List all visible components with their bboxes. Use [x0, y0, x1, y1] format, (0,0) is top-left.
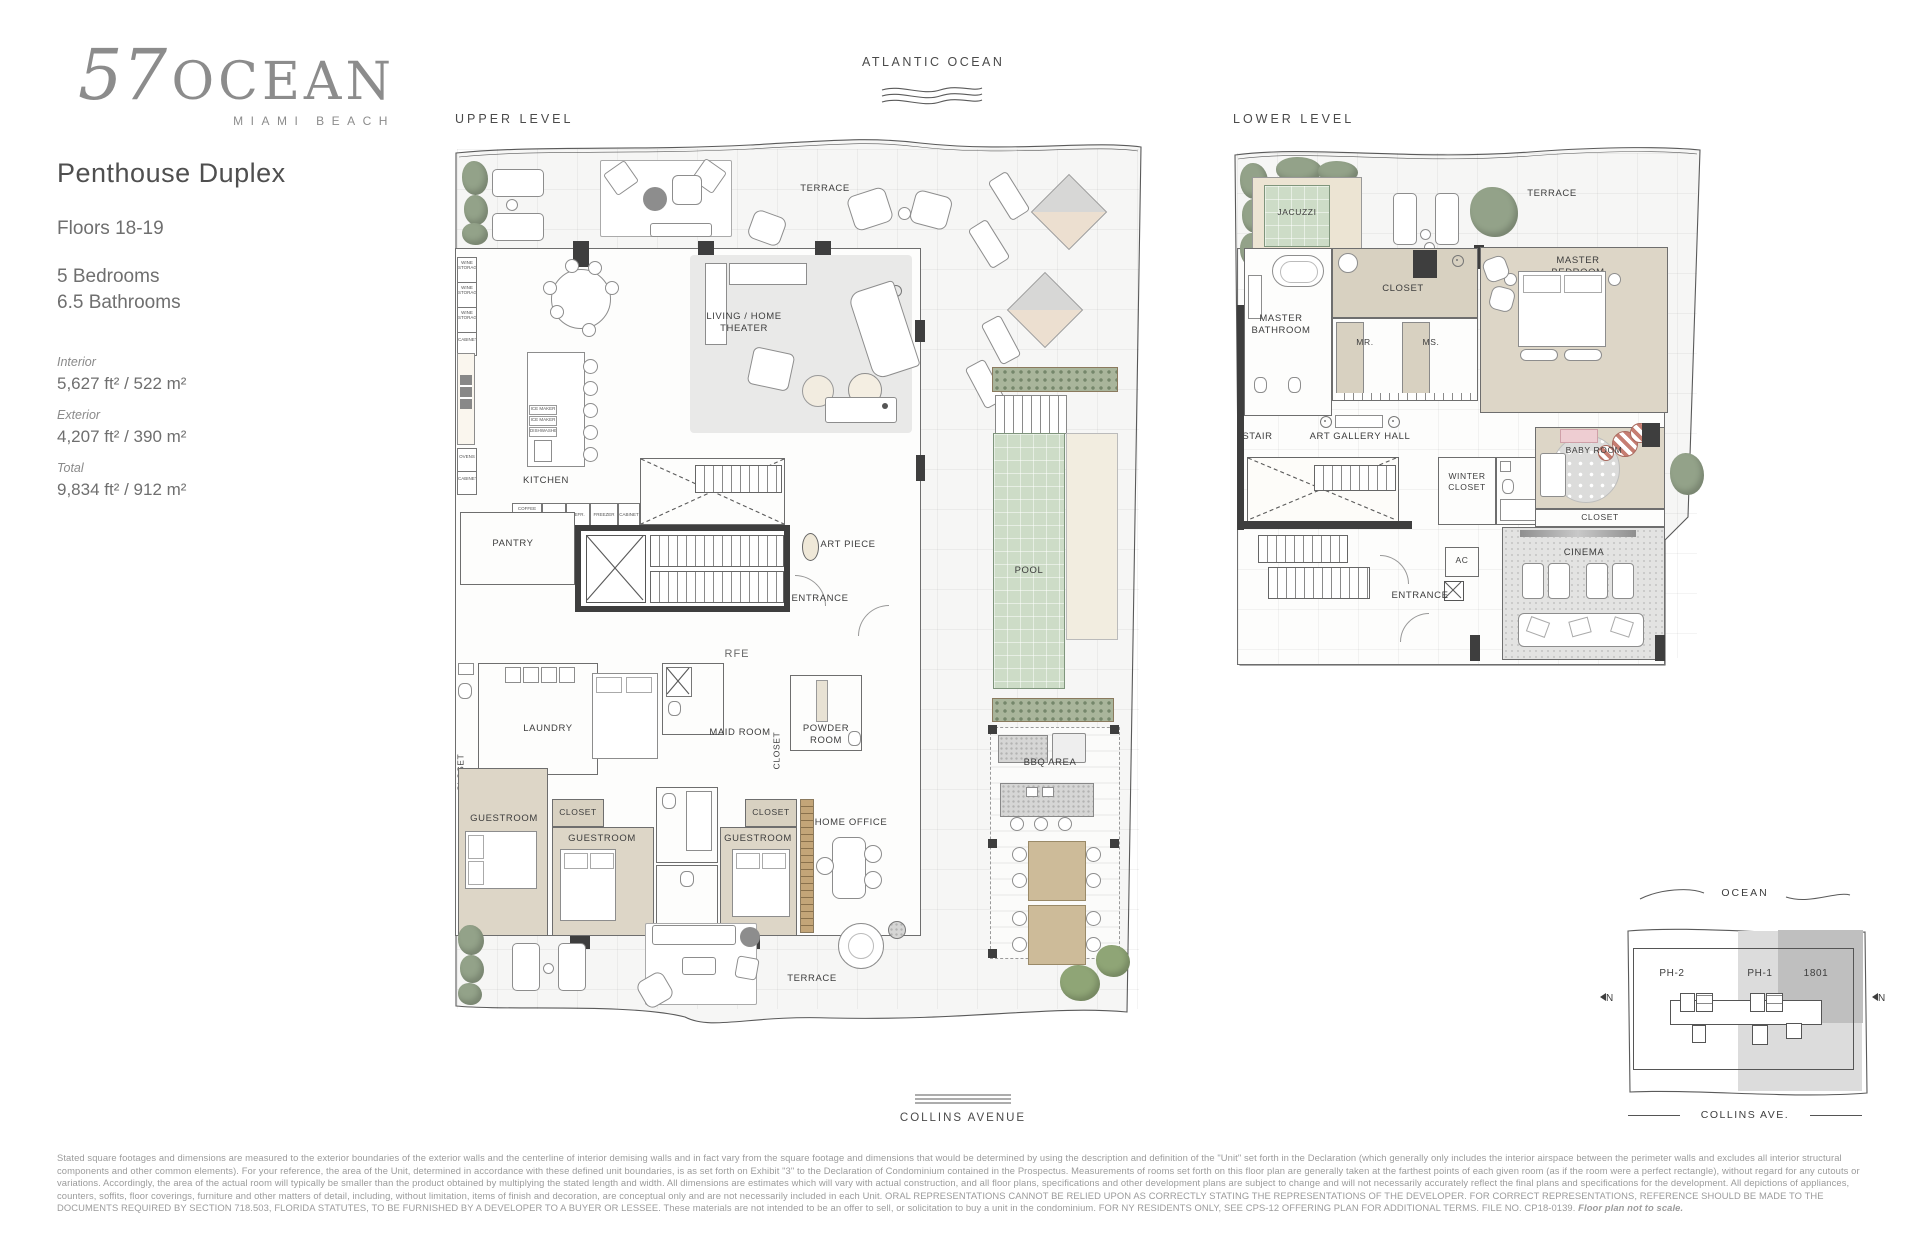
bed-bench: [1520, 349, 1558, 361]
dining-chair: [565, 259, 579, 273]
art-piece-label: ART PIECE: [810, 539, 886, 551]
vanity-chair: [1338, 253, 1358, 273]
key-core-stair: [1766, 993, 1783, 1012]
column: [1655, 635, 1665, 661]
ms-label: MS.: [1416, 337, 1446, 348]
dryer: [541, 667, 557, 683]
cinema-label: CINEMA: [1542, 547, 1626, 559]
area-total-value: 9,834 ft² / 912 m²: [57, 480, 186, 500]
bar-stool: [583, 381, 598, 396]
closet-label: CLOSET: [733, 807, 809, 818]
cooktop: [460, 375, 472, 409]
ice-maker: ICE MAKER: [529, 405, 557, 415]
column: [915, 320, 925, 342]
plant: [458, 925, 484, 955]
office-chair: [816, 857, 834, 875]
key-core-box: [1786, 1023, 1802, 1039]
dining-chair: [605, 281, 619, 295]
ice-maker: ICE MAKER: [529, 416, 557, 426]
toilet: [668, 701, 681, 716]
lower-level-label: LOWER LEVEL: [1233, 112, 1354, 126]
cinema-screen: [1520, 530, 1636, 537]
guestroom-1-label: GUESTROOM: [464, 813, 544, 825]
master-bathroom-label: MASTER BATHROOM: [1244, 313, 1318, 338]
baby-room-label: BABY ROOM: [1552, 445, 1636, 456]
ocean-waves-icon: [882, 84, 982, 106]
collins-avenue-label: COLLINS AVENUE: [878, 1112, 1048, 1124]
pergola-post: [988, 949, 997, 958]
elevator-shaft: [586, 535, 646, 603]
dining-chair: [543, 281, 557, 295]
master-closet-label: CLOSET: [1368, 283, 1438, 295]
wine-storage-unit: WINE STORAGE: [457, 307, 477, 333]
pergola-post: [1110, 839, 1119, 848]
pool: [993, 433, 1065, 689]
art-gallery-label: ART GALLERY HALL: [1300, 431, 1420, 443]
side-table: [1420, 229, 1431, 240]
key-plan: OCEAN PH-2 PH-1 1801 N N COLLINS AVE.: [1600, 865, 1890, 1145]
wine-storage-unit: WINE STORAGE: [457, 282, 477, 308]
key-core-box: [1680, 993, 1695, 1012]
baby-closet-label: CLOSET: [1558, 512, 1642, 523]
shower: [666, 667, 692, 697]
entrance-label: ENTRANCE: [780, 593, 860, 605]
bar-table: [825, 397, 897, 423]
lower-terrace-label: TERRACE: [772, 973, 852, 985]
upper-level-label: UPPER LEVEL: [455, 112, 573, 126]
guestroom-2-label: GUESTROOM: [562, 833, 642, 845]
pillow: [596, 677, 622, 693]
bbq-sink: [1026, 787, 1038, 797]
unit-bedrooms: 5 Bedrooms: [57, 266, 159, 288]
ac-label: AC: [1445, 555, 1479, 566]
unit-bathrooms: 6.5 Bathrooms: [57, 292, 181, 314]
lounge-chair: [558, 943, 586, 991]
bbq-sink: [1042, 787, 1054, 797]
office-chair: [864, 845, 882, 863]
pillow: [564, 853, 588, 869]
sofa: [729, 263, 807, 285]
office-desk: [832, 837, 866, 899]
winter-closet-label: WINTER CLOSET: [1439, 471, 1495, 493]
street-dash: [1810, 1115, 1862, 1116]
palm-plant: [1096, 945, 1130, 977]
washer: [505, 667, 521, 683]
stair-flight: [650, 535, 784, 567]
speaker-icon: [1320, 416, 1332, 428]
recliner-seat: [1548, 563, 1570, 599]
speaker-icon: [1452, 255, 1464, 267]
office-chair: [864, 871, 882, 889]
planter-hedge: [992, 367, 1118, 392]
bench: [650, 223, 712, 237]
pillow: [468, 861, 484, 885]
key-collins-ave-label: COLLINS AVE.: [1685, 1109, 1805, 1123]
dishwasher: DISHWASHER: [529, 427, 557, 437]
dining-chair: [1012, 911, 1027, 926]
stair-treads: [695, 465, 782, 493]
bathtub-inner: [1280, 261, 1318, 283]
key-ph2-label: PH-2: [1642, 967, 1702, 980]
plant: [462, 223, 488, 245]
area-interior-value: 5,627 ft² / 522 m²: [57, 374, 186, 394]
closet-label: CLOSET: [540, 807, 616, 818]
faucet: [882, 403, 888, 409]
washer: [523, 667, 539, 683]
stair-flight: [650, 571, 784, 603]
plant: [458, 983, 482, 1005]
pillow: [736, 853, 760, 869]
pool-deck: [1066, 433, 1118, 640]
wardrobe-block: [1642, 423, 1660, 447]
bathtub: [686, 791, 712, 851]
atlantic-ocean-label: ATLANTIC OCEAN: [862, 55, 1004, 69]
area-interior-label: Interior: [57, 355, 96, 369]
wall: [1237, 305, 1244, 530]
dining-chair: [1012, 847, 1027, 862]
bathtub: [1500, 499, 1538, 521]
plant: [1670, 453, 1704, 495]
crib: [1540, 453, 1566, 497]
terrace-label: TERRACE: [1512, 188, 1592, 200]
dining-chair: [588, 261, 602, 275]
bbq-area-label: BBQ AREA: [1008, 757, 1092, 769]
bar-stool: [583, 425, 598, 440]
upper-terrace-label: TERRACE: [785, 183, 865, 195]
recliner-seat: [1522, 563, 1544, 599]
north-label: N: [1606, 993, 1613, 1004]
pillow: [626, 677, 652, 693]
round-daybed-cushion: [848, 933, 874, 959]
service-stair: [1268, 567, 1370, 599]
pergola-post: [988, 839, 997, 848]
pantry-label: PANTRY: [473, 538, 553, 550]
unit-title: Penthouse Duplex: [57, 158, 286, 189]
armchair: [734, 955, 759, 980]
rfe-label: RFE: [712, 647, 762, 661]
cabinet-unit: CABINET: [457, 471, 477, 495]
north-arrow-right: N: [1872, 993, 1885, 1004]
pergola-post: [1110, 725, 1119, 734]
upper-level-plan: TERRACE WINE STORAGE WINE STORAGE WINE S…: [450, 135, 1150, 1030]
brand-logo: 57 OCEAN MIAMI BEACH: [78, 40, 395, 128]
closet-label: CLOSET: [771, 728, 782, 774]
key-ph1-label: PH-1: [1730, 967, 1790, 980]
pillow: [468, 835, 484, 859]
outdoor-dining-table: [1028, 841, 1086, 901]
palm-plant: [1060, 965, 1100, 1001]
powder-vanity: [816, 680, 828, 722]
fire-table: [643, 187, 667, 211]
jacuzzi-label: JACUZZI: [1260, 207, 1334, 218]
nightstand: [1608, 273, 1621, 286]
key-core-box: [1750, 993, 1765, 1012]
dining-chair: [582, 323, 596, 337]
bar-stool: [583, 447, 598, 462]
outdoor-sofa: [652, 925, 736, 945]
column: [916, 455, 925, 481]
street-lines: [915, 1094, 1011, 1106]
column: [1470, 635, 1480, 661]
unit-floors: Floors 18-19: [57, 218, 164, 240]
dining-table: [551, 269, 611, 329]
recliner-seat: [1612, 563, 1634, 599]
plant: [1470, 187, 1518, 237]
toilet: [848, 731, 861, 746]
fire-table: [740, 927, 760, 947]
outdoor-dining-table: [1028, 905, 1086, 965]
bar-stool: [583, 403, 598, 418]
gallery-console: [1335, 415, 1383, 428]
mr-label: MR.: [1350, 337, 1380, 348]
toilet: [1288, 377, 1301, 393]
deck-steps: [995, 395, 1067, 434]
speaker-icon: [1388, 416, 1400, 428]
plant: [464, 195, 488, 225]
wall: [1240, 521, 1412, 529]
pool-label: POOL: [999, 565, 1059, 577]
pergola-post: [988, 725, 997, 734]
key-core-stair: [1696, 993, 1713, 1012]
plant: [460, 955, 484, 983]
street-dash: [1628, 1115, 1680, 1116]
key-1801-label: 1801: [1786, 967, 1846, 980]
wine-storage-unit: WINE STORAGE: [457, 257, 477, 283]
lounge-chair: [512, 943, 540, 991]
lower-level-plan: JACUZZI TERRACE MASTER BEDROOM CLOSET MR…: [1230, 135, 1710, 680]
pink-rug: [1560, 429, 1598, 443]
dining-chair: [550, 305, 564, 319]
floorplan-brochure-page: 57 OCEAN MIAMI BEACH Penthouse Duplex Fl…: [0, 0, 1920, 1242]
key-core-box: [1752, 1025, 1768, 1045]
north-arrow-left: N: [1600, 993, 1613, 1004]
bed-bench: [1564, 349, 1602, 361]
shoe-shelf: [1336, 393, 1474, 400]
planter-hedge: [992, 698, 1114, 722]
north-label: N: [1878, 993, 1885, 1004]
bar-stool: [1058, 817, 1072, 831]
guestroom-3-label: GUESTROOM: [718, 833, 798, 845]
recliner-seat: [1586, 563, 1608, 599]
brand-logo-number: 57: [78, 34, 167, 116]
dining-chair: [1086, 873, 1101, 888]
side-table: [888, 921, 906, 939]
dining-chair: [1012, 937, 1027, 952]
home-office-label: HOME OFFICE: [808, 817, 894, 829]
lounge-chair: [1435, 193, 1459, 245]
pillow: [762, 853, 786, 869]
toilet: [662, 793, 676, 809]
dining-chair: [1086, 847, 1101, 862]
dining-chair: [1012, 873, 1027, 888]
planter-box: [672, 175, 702, 205]
brand-logo-name: OCEAN: [172, 52, 395, 112]
kitchen-label: KITCHEN: [506, 475, 586, 487]
coffee-table: [682, 957, 716, 975]
bath-sink: [1500, 461, 1511, 472]
side-table: [543, 963, 554, 974]
wardrobe-column: [1402, 322, 1430, 394]
pillow: [1523, 275, 1561, 293]
wardrobe-block: [1413, 250, 1437, 278]
disclaimer-note: Floor plan not to scale.: [1578, 1202, 1683, 1213]
area-exterior-label: Exterior: [57, 408, 100, 422]
area-total-label: Total: [57, 461, 84, 475]
disclaimer: Stated square footages and dimensions ar…: [57, 1152, 1869, 1215]
pillow: [590, 853, 614, 869]
plant: [462, 161, 488, 195]
brand-logo-subtitle: MIAMI BEACH: [78, 114, 395, 128]
entrance-label: ENTRANCE: [1380, 590, 1460, 602]
toilet: [1254, 377, 1267, 393]
bath-sink: [458, 663, 474, 675]
lounge-chair: [492, 169, 544, 197]
bar-stool: [583, 359, 598, 374]
maid-room-label: MAID ROOM: [708, 727, 772, 739]
wardrobe-column: [1336, 322, 1364, 394]
stair-treads: [1314, 465, 1396, 491]
service-stair: [1258, 535, 1348, 563]
bar-stool: [1034, 817, 1048, 831]
pillow: [1564, 275, 1602, 293]
lounge-chair: [1393, 193, 1417, 245]
side-table: [506, 199, 518, 211]
dryer: [559, 667, 575, 683]
toilet: [1502, 479, 1514, 494]
side-table: [898, 207, 911, 220]
stair-label: STAIR: [1235, 431, 1280, 443]
lounge-chair: [492, 213, 544, 241]
laundry-label: LAUNDRY: [508, 723, 588, 735]
dining-chair: [1086, 911, 1101, 926]
island-sink: [534, 440, 552, 462]
toilet: [680, 871, 694, 887]
bar-stool: [1010, 817, 1024, 831]
key-core-box: [1692, 1025, 1706, 1043]
toilet: [458, 683, 472, 699]
living-label: LIVING / HOME THEATER: [684, 311, 804, 336]
area-exterior-value: 4,207 ft² / 390 m²: [57, 427, 186, 447]
